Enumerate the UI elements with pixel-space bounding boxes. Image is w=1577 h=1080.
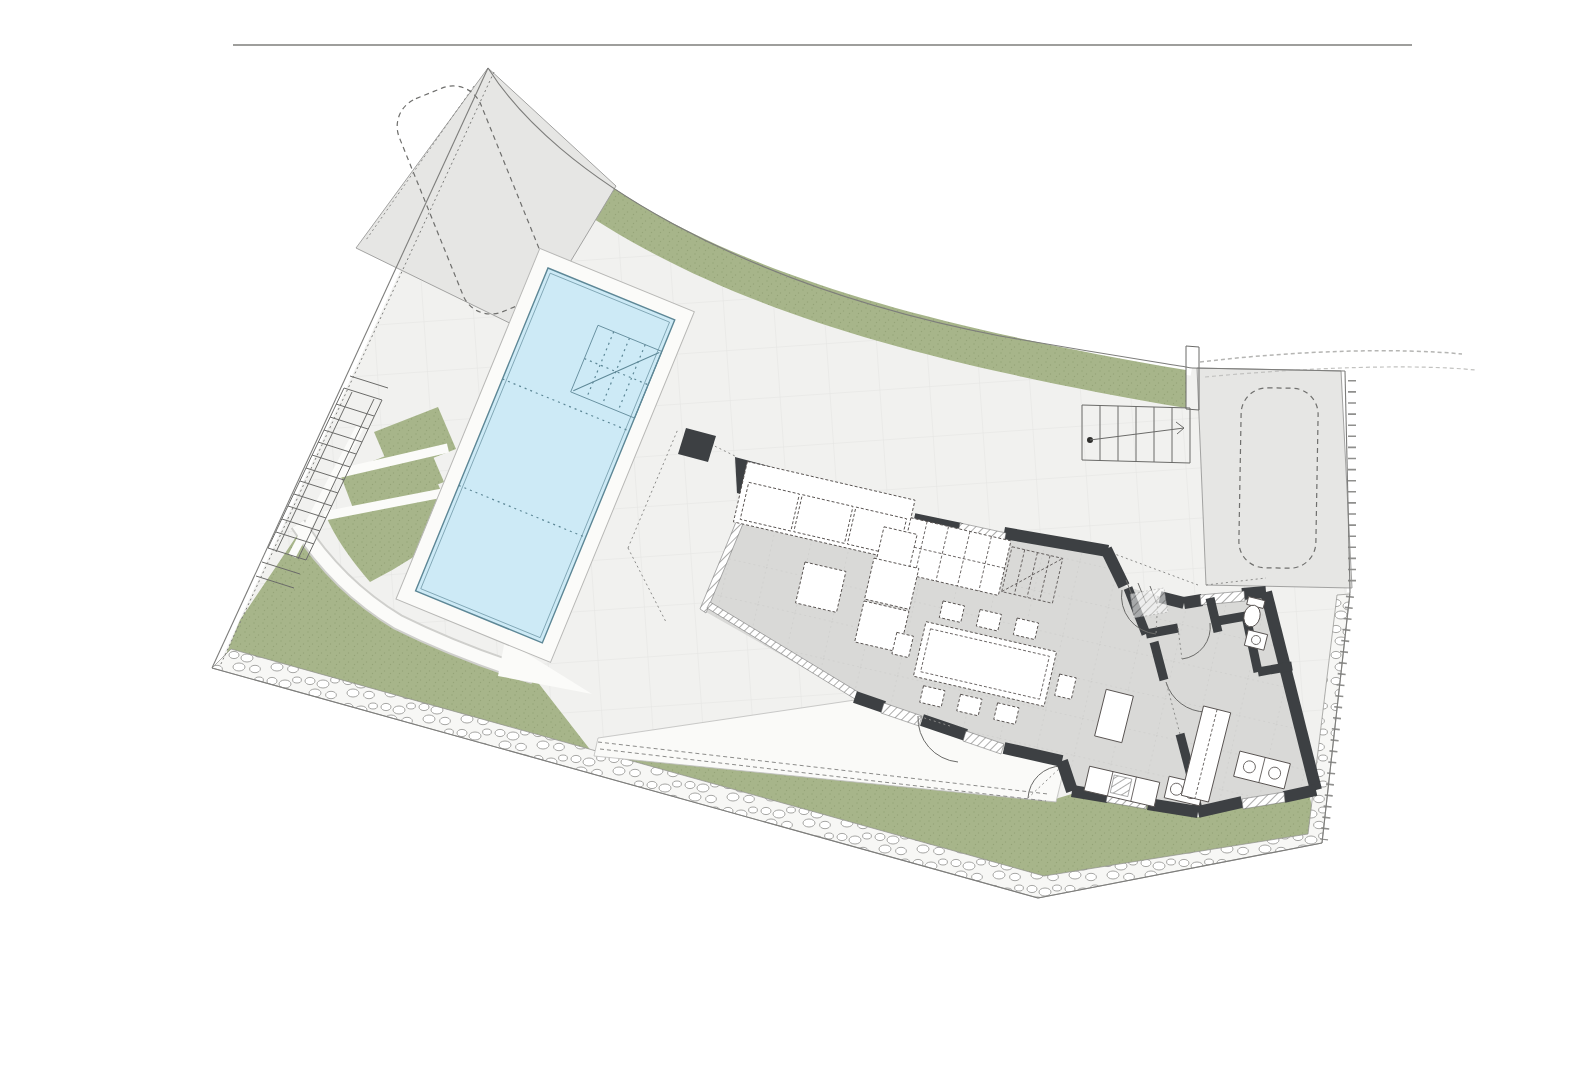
page-canvas: [0, 0, 1577, 1080]
road-edge-dashed: [1200, 351, 1462, 362]
stove: [1110, 775, 1132, 797]
site-plan-drawing: [0, 0, 1577, 1080]
parking-pad-right: [1197, 368, 1352, 588]
